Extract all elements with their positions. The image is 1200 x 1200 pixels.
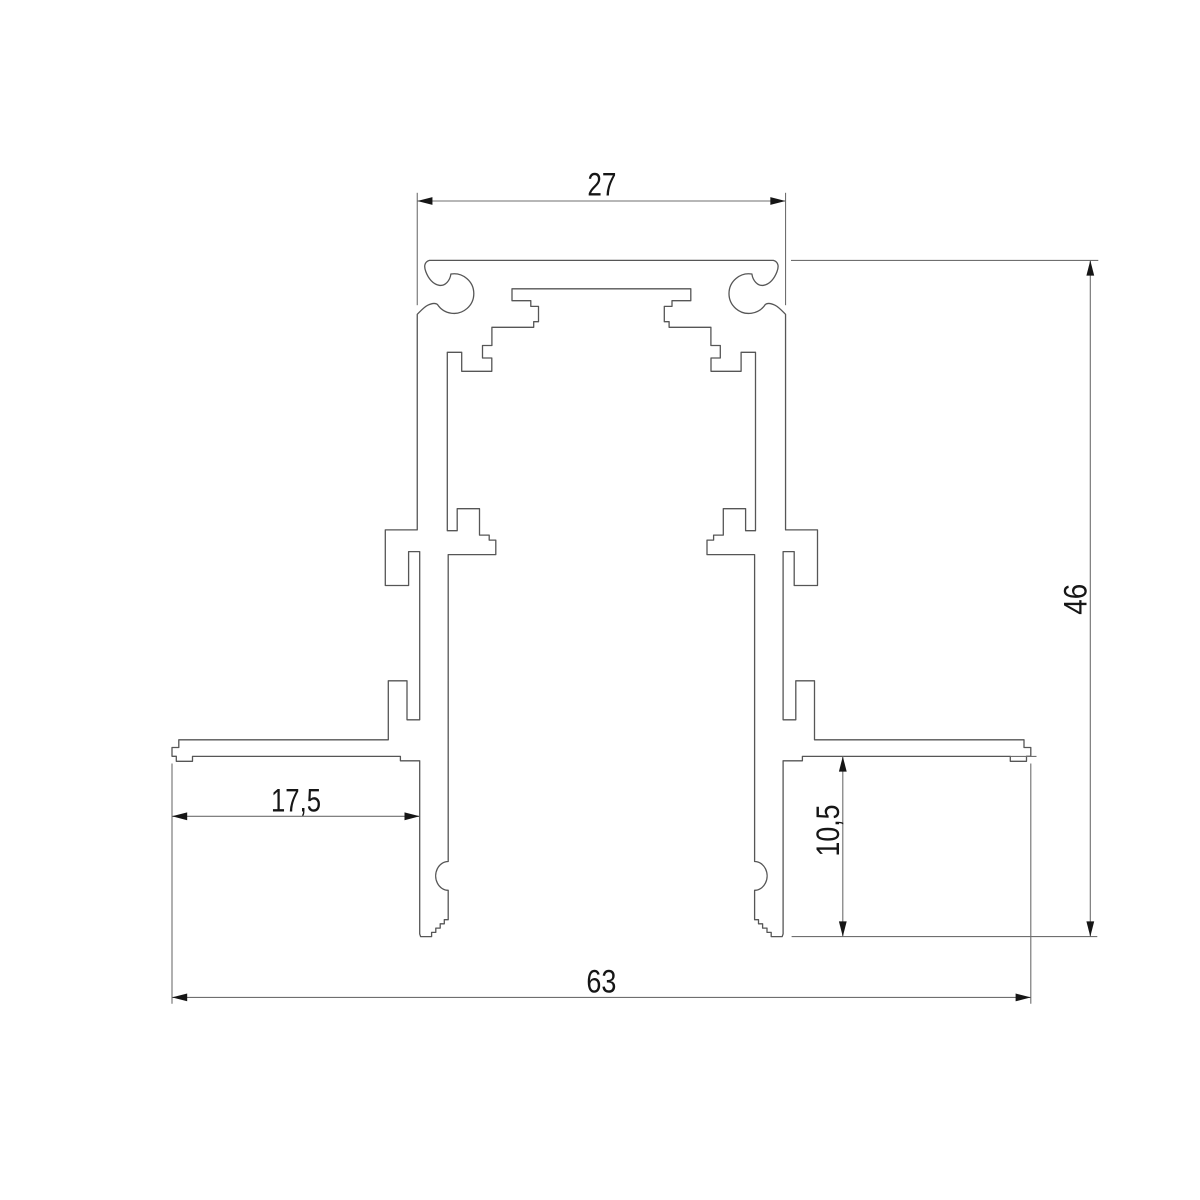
svg-text:63: 63 bbox=[586, 963, 616, 999]
svg-text:27: 27 bbox=[587, 166, 616, 202]
svg-text:10,5: 10,5 bbox=[810, 805, 846, 857]
svg-text:17,5: 17,5 bbox=[271, 782, 321, 818]
svg-text:46: 46 bbox=[1058, 584, 1094, 615]
